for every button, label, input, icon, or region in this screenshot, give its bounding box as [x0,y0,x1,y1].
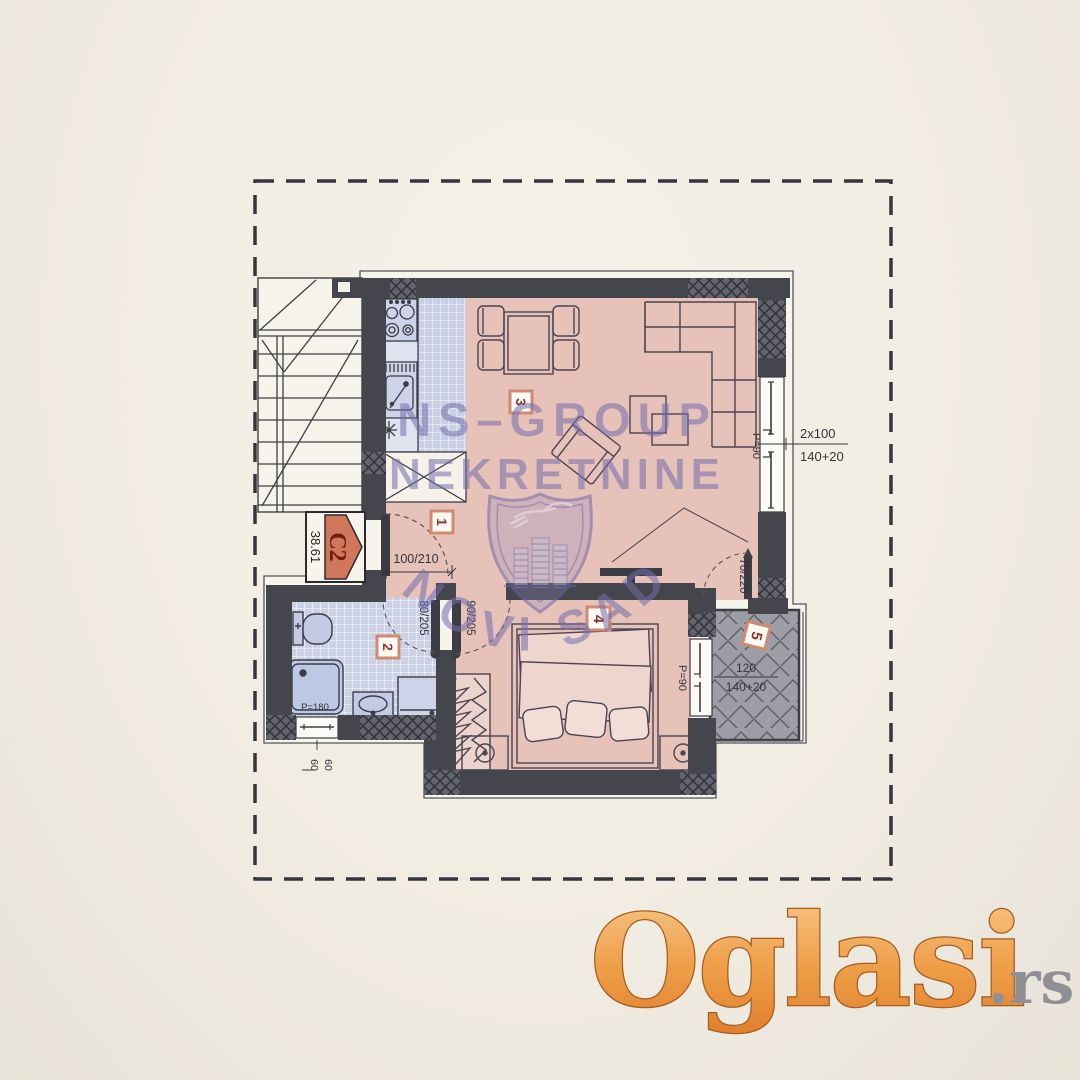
room-badge-hall: 1 [431,511,453,533]
washbasin [353,692,393,716]
svg-text:120: 120 [736,661,756,675]
bedroom-window [690,639,712,716]
floor-plan-svg: 100/210 80/205 90/205 70/220 P=90 P=90 2… [0,0,1080,1080]
shower-size: P=180 [301,702,329,713]
living-window-parapet: P=90 [750,433,762,459]
svg-text:140+20: 140+20 [726,680,767,694]
bath-window-dimension: 60 60 [302,740,334,771]
oglasi-logo: Oglasi .rs [590,887,1074,1035]
toilet [293,612,332,645]
unit-label: C2 38.61 [306,512,365,582]
washing-machine [398,677,440,716]
room-badge-terrace: 5 [742,621,770,649]
svg-text:2x100: 2x100 [800,426,835,441]
stove [383,299,417,341]
svg-text:60: 60 [322,759,334,771]
watermark-line2: NEKRETNINE [389,450,725,499]
entrance-door-size: 100/210 [393,552,438,566]
svg-text:1: 1 [434,518,450,526]
bedroom-window-parapet: P=90 [676,665,688,691]
oglasi-brand-text: Oglasi [590,887,1024,1035]
unit-code: C2 [324,532,350,561]
unit-area: 38.61 [308,531,323,564]
svg-text:60: 60 [308,759,320,771]
bathroom-window [296,717,338,738]
floor-plan-photo: 100/210 80/205 90/205 70/220 P=90 P=90 2… [0,0,1080,1080]
oglasi-tld-text: .rs [988,948,1074,1018]
staircase [258,278,362,512]
watermark-line1: NS–GROUP [397,393,717,446]
terrace-door-size: 70/220 [737,558,749,593]
svg-text:140+20: 140+20 [800,449,844,464]
room-badge-bathroom: 2 [377,636,399,658]
svg-text:2: 2 [380,643,396,651]
